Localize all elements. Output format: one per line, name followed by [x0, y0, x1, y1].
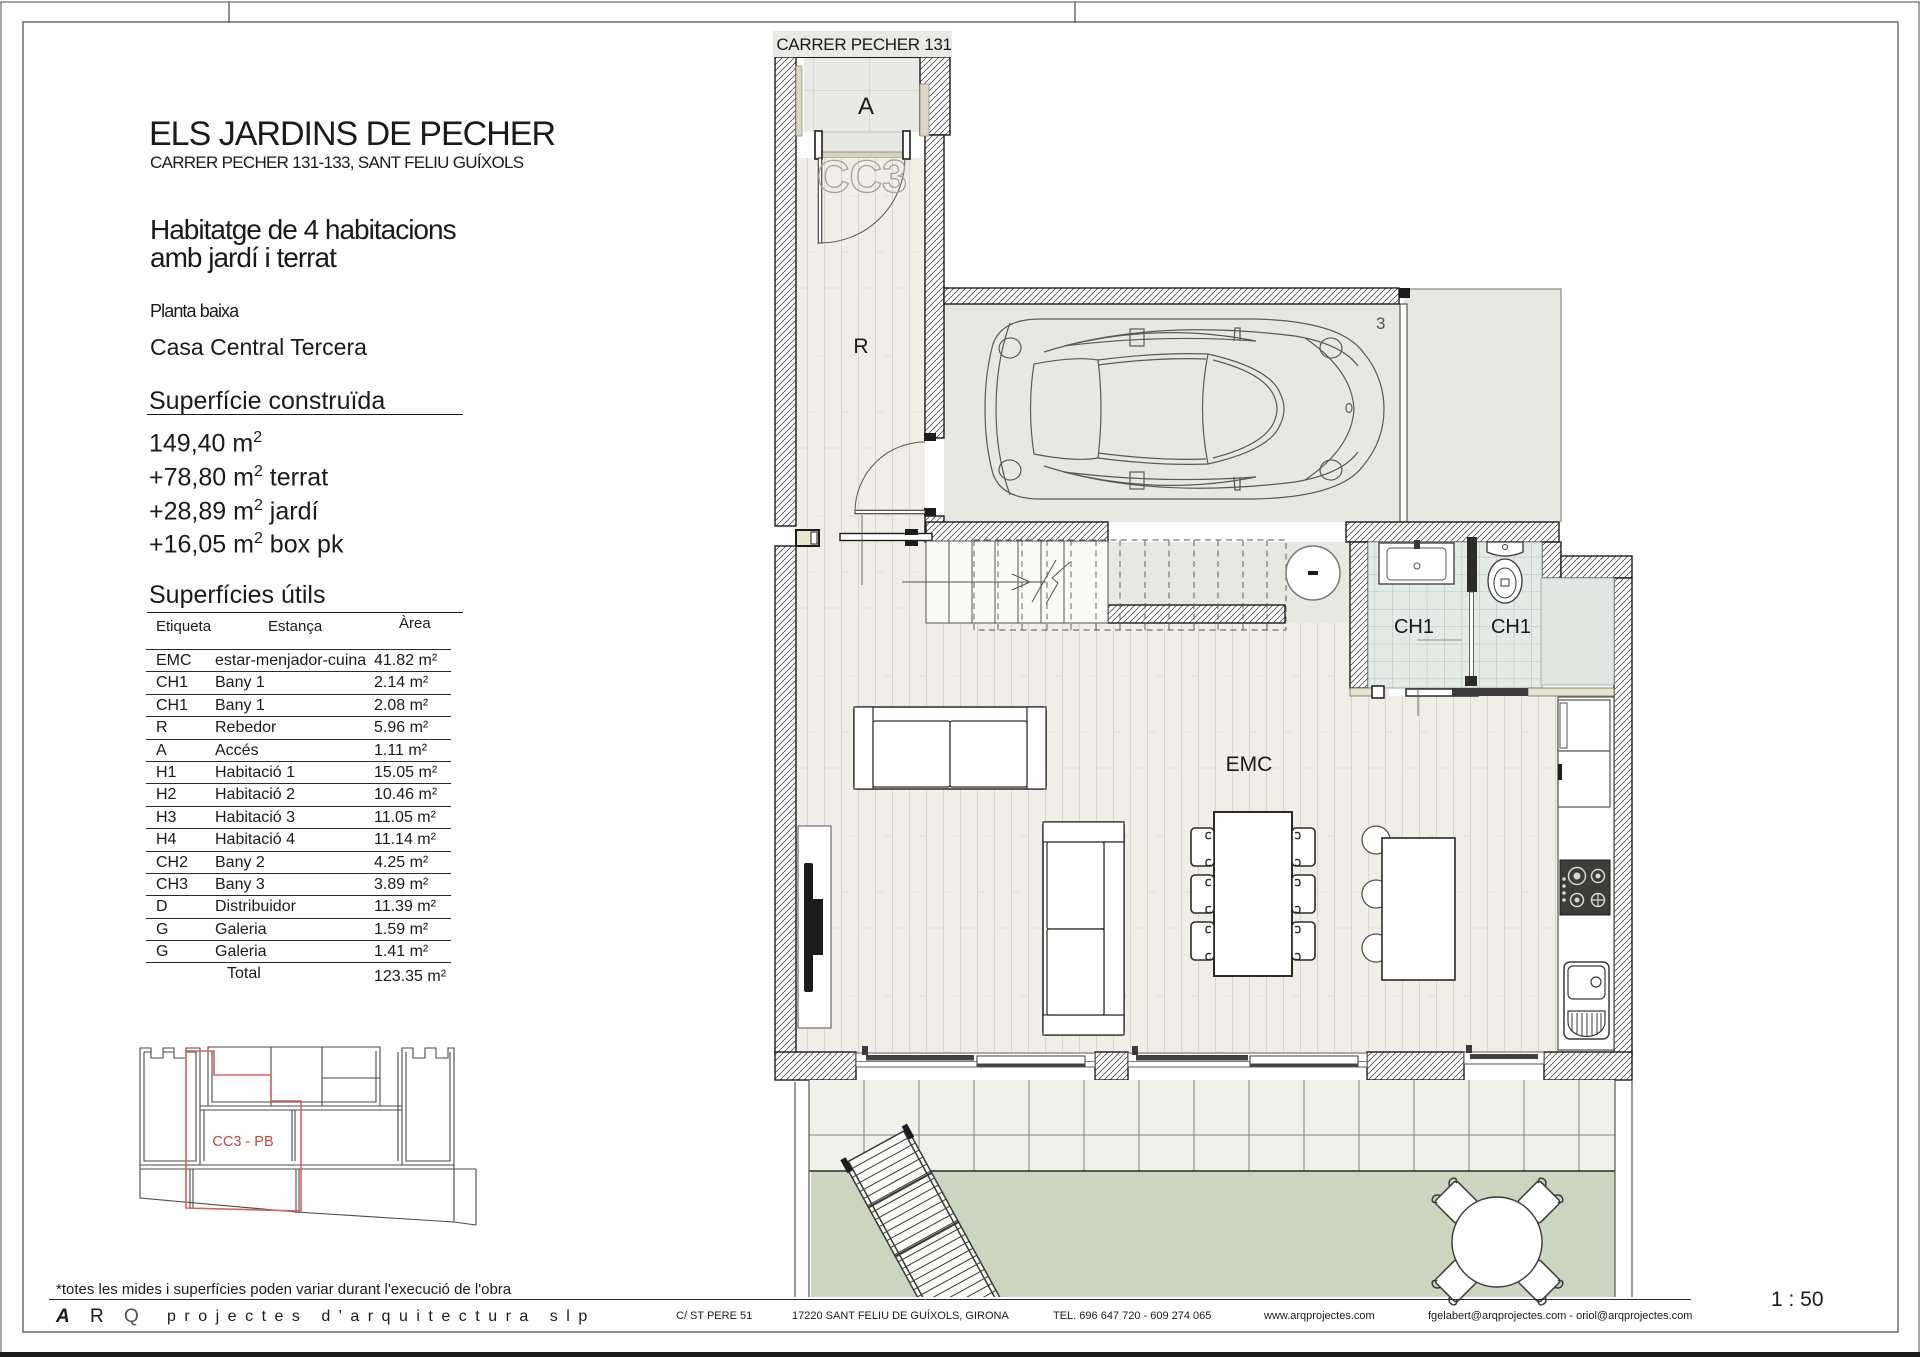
- svg-text:3: 3: [1376, 314, 1385, 333]
- svg-text:CARRER PECHER 131: CARRER PECHER 131: [776, 35, 951, 54]
- svg-text:EMC: EMC: [1226, 753, 1273, 776]
- svg-text:CC3 - PB: CC3 - PB: [212, 1134, 273, 1150]
- svg-text:R: R: [853, 335, 868, 358]
- svg-text:CH1: CH1: [1394, 616, 1434, 638]
- svg-text:CC3: CC3: [817, 151, 907, 202]
- svg-text:CH1: CH1: [1491, 616, 1531, 638]
- svg-text:A: A: [858, 93, 874, 120]
